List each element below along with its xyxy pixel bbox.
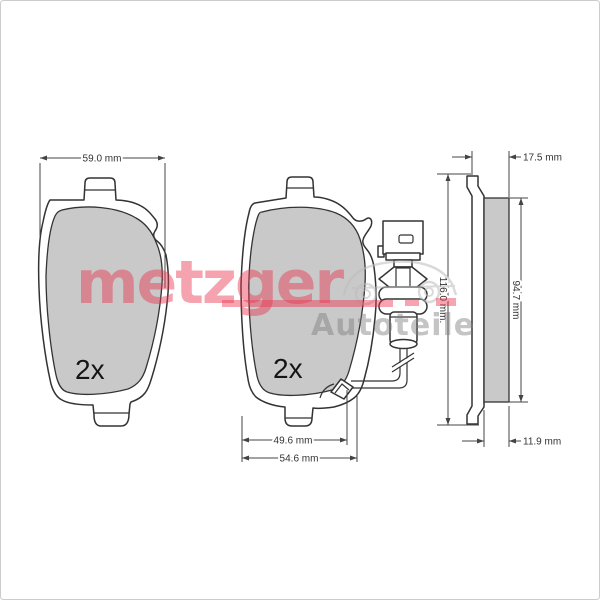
watermark-underline (222, 300, 393, 307)
dimension-label-49: 49.6 mm (274, 436, 313, 447)
side-friction-material (484, 198, 509, 402)
connector-body (383, 221, 423, 254)
connector-flange (386, 253, 420, 260)
drawing-canvas: 2x 2x (0, 0, 600, 600)
brake-pad-technical-drawing: 2x 2x (0, 0, 600, 600)
quantity-label-left: 2x (75, 354, 105, 385)
watermark-brand-text: metzger (76, 248, 344, 318)
dimension-label-94: 94.7 mm (510, 281, 521, 320)
pad-side-view (467, 176, 509, 424)
dimension-label-17: 17.5 mm (523, 153, 562, 164)
watermark-subbrand-text: Autoteile (311, 308, 475, 343)
dimension-label-59: 59.0 mm (83, 154, 122, 165)
quantity-label-right: 2x (273, 353, 303, 384)
watermark-underline-dash-1 (405, 299, 419, 306)
dimension-label-11: 11.9 mm (523, 437, 561, 448)
watermark-underline-dash-2 (436, 298, 456, 306)
dimension-label-54: 54.6 mm (280, 454, 319, 465)
